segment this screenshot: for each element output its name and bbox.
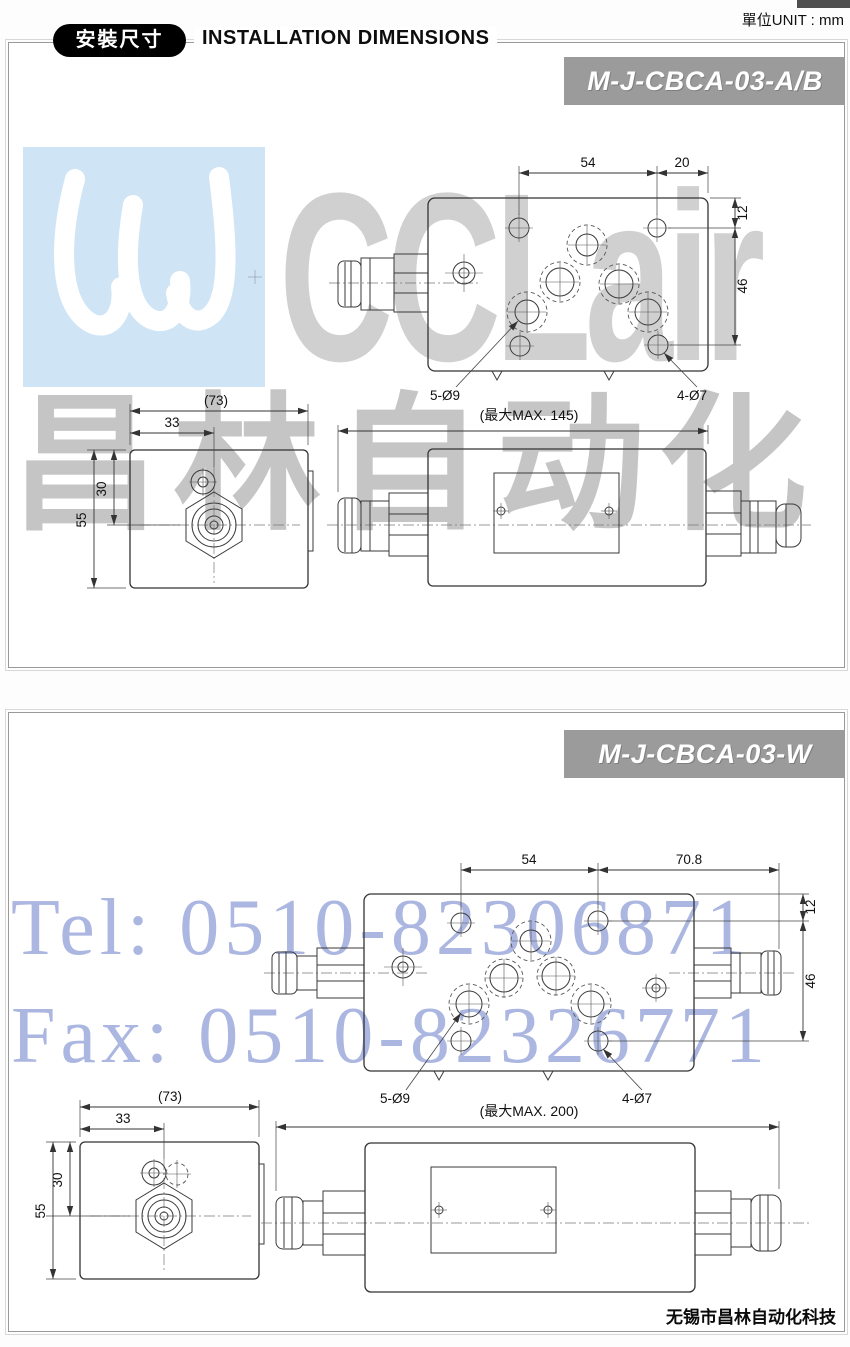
dim-73-label: (73) xyxy=(158,1089,182,1104)
dim-30-label: 30 xyxy=(94,481,109,496)
dim-max200-label: (最大MAX. 200) xyxy=(480,1103,579,1119)
panel-model-w: M-J-CBCA-03-W Tel: 0510-82306871 Fax: 05… xyxy=(8,712,845,1332)
holes-4d7-label: 4-Ø7 xyxy=(622,1091,652,1106)
model-badge-w: M-J-CBCA-03-W xyxy=(564,730,845,778)
dim-33-label: 33 xyxy=(164,415,179,430)
top-view-w: 54 70.8 12 46 5-Ø9 4-Ø7 xyxy=(264,852,818,1106)
dim-max145-label: (最大MAX. 145) xyxy=(480,407,579,423)
side-view-w: (73) 33 30 55 xyxy=(33,1089,264,1279)
front-view-ab: (最大MAX. 145) xyxy=(248,270,811,586)
dim-54-label: 54 xyxy=(521,852,537,867)
dim-33-label: 33 xyxy=(115,1111,130,1126)
dim-20-label: 20 xyxy=(674,155,689,170)
dim-73-label: (73) xyxy=(204,393,228,408)
dim-55-label: 55 xyxy=(33,1203,48,1218)
front-view-w: (最大MAX. 200) xyxy=(261,1103,809,1292)
holes-5d9-label: 5-Ø9 xyxy=(430,388,460,403)
top-view-ab: 54 20 12 46 5-Ø9 4-Ø7 xyxy=(329,155,750,403)
dim-54-label: 54 xyxy=(580,155,596,170)
dim-30-label: 30 xyxy=(50,1172,65,1187)
side-view-ab: (73) 33 30 55 xyxy=(74,393,313,588)
dim-12-label: 12 xyxy=(803,899,818,914)
panel1-drawings: 54 20 12 46 5-Ø9 4-Ø7 xyxy=(9,43,844,667)
catalog-page: 單位UNIT : mm 安裝尺寸 INSTALLATION DIMENSIONS… xyxy=(0,0,850,1347)
header-badge: 安裝尺寸 xyxy=(53,24,186,57)
panel-model-ab: M-J-CBCA-03-A/B CCLair 昌林自动化 xyxy=(8,42,845,668)
dim-55-label: 55 xyxy=(74,512,89,527)
corner-bar xyxy=(797,0,850,8)
holes-4d7-label: 4-Ø7 xyxy=(677,388,707,403)
dim-12-label: 12 xyxy=(735,205,750,220)
dim-70-8-label: 70.8 xyxy=(676,852,702,867)
footer-company: 无锡市昌林自动化科技 xyxy=(666,1303,836,1328)
dim-46-label: 46 xyxy=(803,973,818,988)
holes-5d9-label: 5-Ø9 xyxy=(380,1091,410,1106)
page-title: INSTALLATION DIMENSIONS xyxy=(194,27,497,50)
unit-label: 單位UNIT : mm xyxy=(742,9,844,30)
dim-46-label: 46 xyxy=(735,278,750,293)
model-badge-ab: M-J-CBCA-03-A/B xyxy=(564,57,845,105)
panel2-drawings: 54 70.8 12 46 5-Ø9 4-Ø7 xyxy=(9,713,844,1331)
